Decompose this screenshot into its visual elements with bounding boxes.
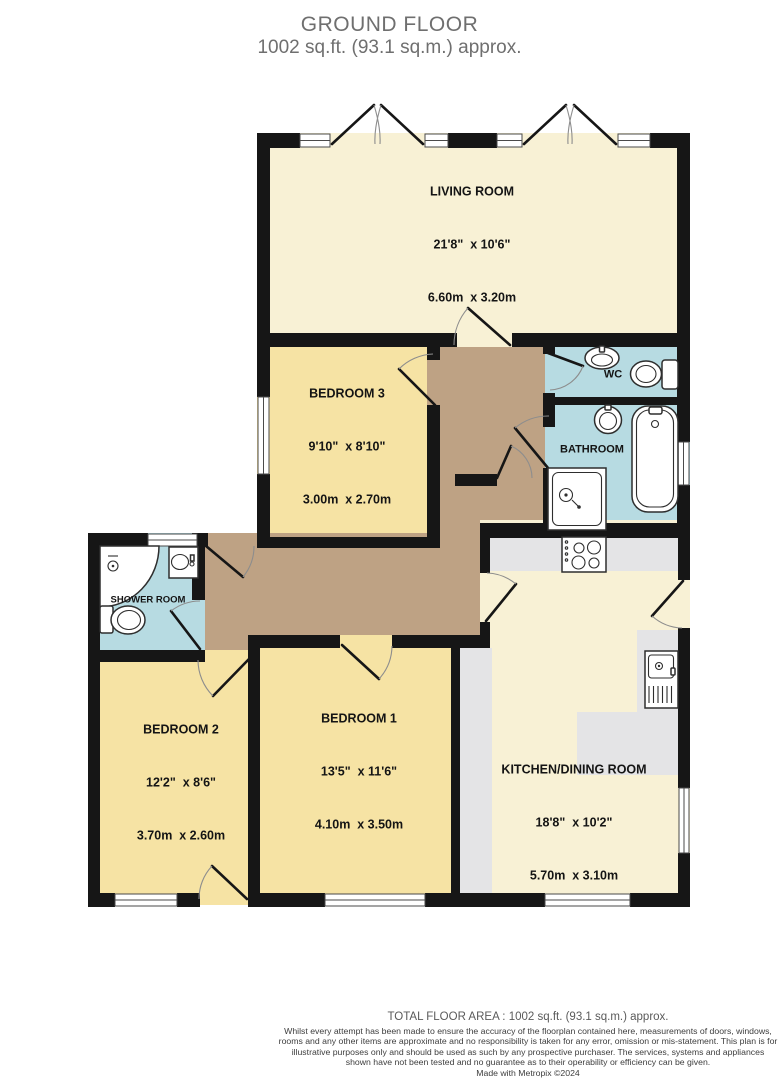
bathtub-icon	[632, 406, 678, 512]
toilet-icon	[631, 360, 679, 389]
footer: TOTAL FLOOR AREA : 1002 sq.ft. (93.1 sq.…	[278, 1011, 778, 1078]
living-room-label: LIVING ROOM 21'8" x 10'6" 6.60m x 3.20m	[428, 148, 516, 343]
hob-icon	[562, 537, 606, 572]
window-living-2	[425, 134, 448, 147]
window-living-3	[497, 134, 522, 147]
bathroom-label: BATHROOM	[560, 408, 624, 493]
bedroom2-label: BEDROOM 2 12'2" x 8'6" 3.70m x 2.60m	[137, 686, 225, 881]
window-bathroom	[678, 442, 689, 485]
window-kitchen-right	[679, 788, 689, 853]
total-floor-area: TOTAL FLOOR AREA : 1002 sq.ft. (93.1 sq.…	[278, 1011, 778, 1023]
window-bedroom3	[258, 397, 269, 474]
window-bedroom1	[325, 894, 425, 906]
kitchen-sink-icon	[645, 651, 678, 708]
window-living-1	[300, 134, 330, 147]
bedroom1-label: BEDROOM 1 13'5" x 11'6" 4.10m x 3.50m	[315, 675, 403, 870]
shower-room-label: SHOWER ROOM	[111, 559, 186, 642]
window-living-4	[618, 134, 650, 147]
window-bedroom2	[115, 894, 177, 906]
wc-label: WC	[604, 333, 622, 418]
kitchen-label: KITCHEN/DINING ROOM 18'8" x 10'2" 5.70m …	[501, 726, 646, 921]
floorplan-page: GROUND FLOOR 1002 sq.ft. (93.1 sq.m.) ap…	[0, 0, 779, 1080]
credit-text: Made with Metropix ©2024	[278, 1068, 778, 1078]
disclaimer-text: Whilst every attempt has been made to en…	[278, 1026, 778, 1068]
bedroom3-label: BEDROOM 3 9'10" x 8'10" 3.00m x 2.70m	[303, 350, 391, 545]
window-shower-room	[148, 534, 197, 546]
counter-left	[460, 648, 492, 893]
